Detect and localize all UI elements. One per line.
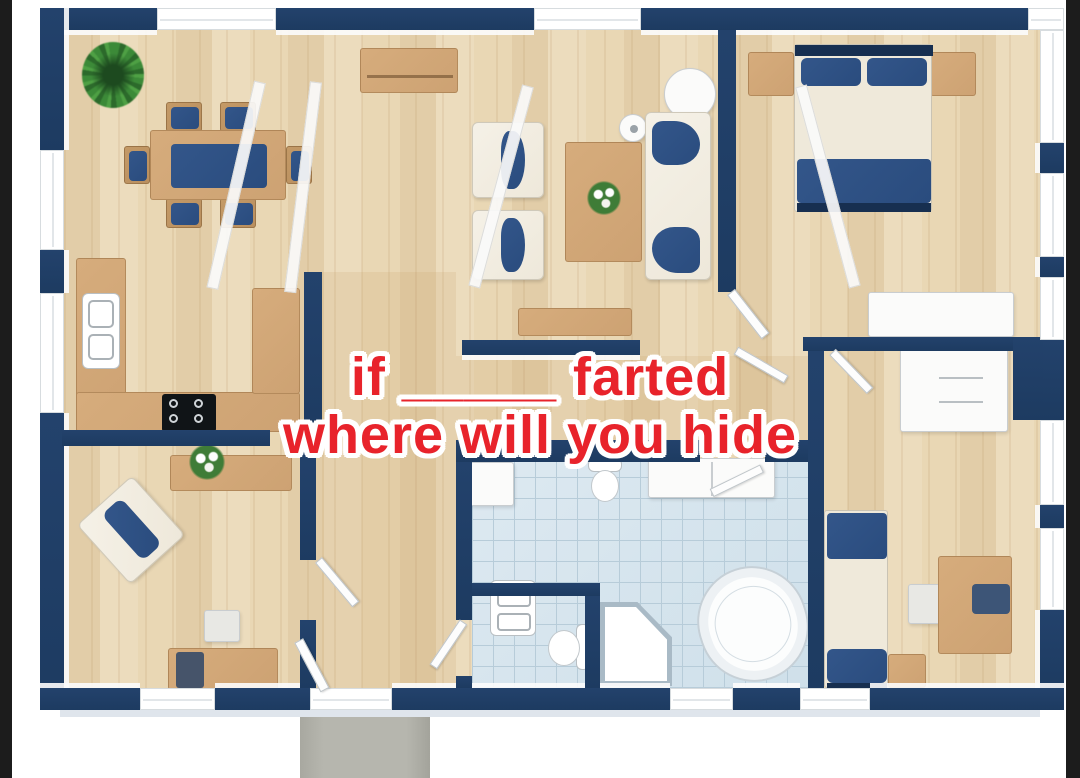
computer bbox=[176, 652, 204, 688]
console-table bbox=[518, 308, 632, 336]
sofa bbox=[645, 112, 711, 280]
window bbox=[534, 8, 641, 30]
potted-plant bbox=[82, 42, 144, 108]
window bbox=[800, 688, 870, 710]
bathroom-cabinet bbox=[470, 462, 514, 506]
meme-caption: if _____ farted where will you hide bbox=[0, 348, 1080, 464]
window bbox=[157, 8, 276, 30]
window bbox=[1040, 277, 1064, 340]
dining-chair bbox=[166, 102, 202, 132]
window bbox=[40, 150, 64, 250]
window bbox=[670, 688, 733, 710]
floor-plan-meme-image: if _____ farted where will you hide bbox=[0, 0, 1080, 778]
dining-chair bbox=[166, 198, 202, 228]
interior-wall bbox=[456, 462, 472, 620]
single-bed bbox=[824, 510, 888, 688]
wall-segment bbox=[50, 8, 157, 30]
wall-segment bbox=[215, 688, 310, 710]
window bbox=[1040, 30, 1064, 143]
dining-chair bbox=[124, 146, 150, 184]
dresser bbox=[868, 292, 1014, 337]
wall-segment bbox=[392, 688, 670, 710]
nightstand bbox=[748, 52, 794, 96]
interior-wall bbox=[456, 676, 472, 688]
meme-line-2: where will you hide bbox=[0, 406, 1080, 464]
desk-chair bbox=[908, 584, 942, 624]
wall-segment bbox=[40, 8, 64, 150]
wall-segment bbox=[1040, 143, 1064, 173]
wall-segment bbox=[40, 250, 64, 293]
dining-table bbox=[150, 130, 286, 200]
laptop bbox=[972, 584, 1010, 614]
window bbox=[1028, 8, 1064, 30]
desk-chair bbox=[204, 610, 240, 642]
wall-segment bbox=[276, 8, 534, 30]
wall-segment bbox=[1040, 505, 1064, 528]
wall-segment bbox=[1040, 610, 1064, 690]
nightstand bbox=[930, 52, 976, 96]
wall-segment bbox=[1040, 257, 1064, 277]
wall-segment bbox=[733, 688, 800, 710]
wc-nook-wall bbox=[472, 583, 600, 596]
house-shadow bbox=[60, 710, 1040, 717]
wall-segment bbox=[641, 8, 1028, 30]
wall-segment bbox=[870, 688, 1064, 710]
window bbox=[1040, 528, 1064, 610]
window bbox=[140, 688, 215, 710]
hallway-floor bbox=[322, 272, 456, 688]
interior-wall bbox=[718, 30, 736, 292]
flower-bouquet bbox=[585, 180, 623, 216]
nightstand bbox=[888, 654, 926, 688]
window bbox=[1040, 173, 1064, 257]
wc-nook-wall bbox=[585, 596, 600, 688]
tv-sideboard bbox=[360, 48, 458, 93]
floor-lamp bbox=[619, 114, 647, 142]
wall-segment bbox=[40, 688, 140, 710]
meme-line-1: if _____ farted bbox=[0, 348, 1080, 406]
